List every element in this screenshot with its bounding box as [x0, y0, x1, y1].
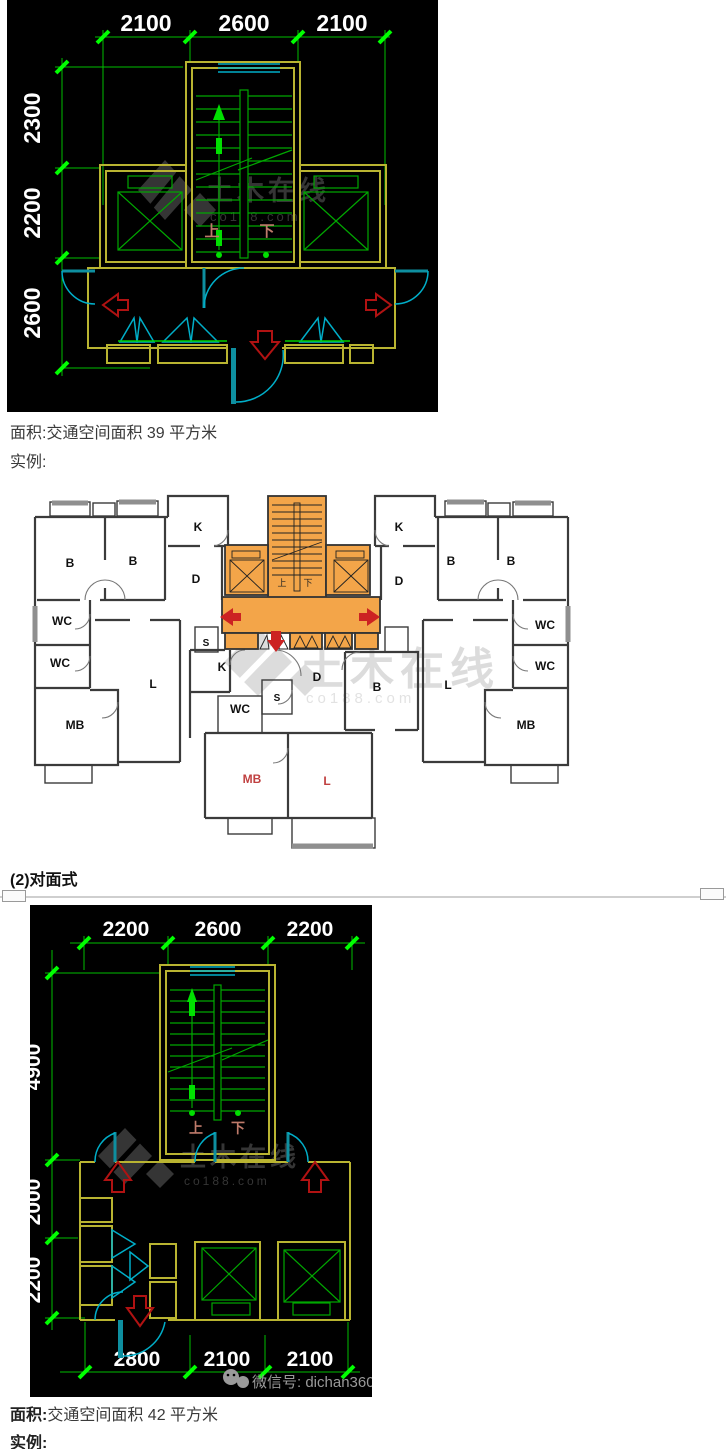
stair-down-label: 下: [303, 578, 312, 588]
room-label: MB: [66, 718, 85, 732]
dim-left-2: 2200: [19, 187, 45, 238]
dim-left-3: 2200: [30, 1257, 45, 1304]
dim-top-1: 2200: [103, 918, 150, 941]
room-label: WC: [52, 614, 72, 628]
dim-top-3: 2200: [287, 918, 334, 941]
room-label: K: [395, 520, 404, 534]
dim-bottom-3: 2100: [287, 1348, 334, 1371]
watermark-sub: co188.com: [306, 690, 415, 707]
dim-top-2: 2600: [218, 10, 269, 36]
area-label: 面积:: [10, 425, 46, 442]
room-label: B: [66, 556, 75, 570]
room-label: K: [194, 520, 203, 534]
dim-left-1: 2300: [19, 92, 45, 143]
watermark-title: 土木在线: [180, 1142, 300, 1172]
watermark-sub: co188.com: [210, 209, 301, 224]
dim-top-3: 2100: [316, 10, 367, 36]
dim-top-2: 2600: [195, 918, 242, 941]
room-label: WC: [230, 702, 250, 716]
unit-left-walls: [35, 496, 228, 783]
room-label: K: [218, 660, 227, 674]
figure3-example-label: 实例:: [10, 1429, 47, 1449]
stair-up-label: 上: [189, 1120, 203, 1136]
dim-left-2: 2000: [30, 1179, 45, 1226]
room-label: B: [447, 554, 456, 568]
article-page: 土木在线 co188.com 2100 2600 2100: [0, 0, 726, 1449]
dim-bottom-2: 2100: [204, 1348, 251, 1371]
room-label-red: L: [323, 774, 330, 788]
stair-down-label: 下: [259, 223, 274, 240]
divider-handle-right: [700, 888, 724, 900]
room-label: L: [444, 678, 451, 692]
figure3-caption: 面积:交通空间面积 42 平方米: [10, 1401, 218, 1425]
section-heading: (2)对面式: [10, 866, 78, 890]
area-value: 交通空间面积 42 平方米: [47, 1407, 218, 1424]
core-highlight: 上 下: [220, 496, 380, 652]
room-label: MB: [517, 718, 536, 732]
watermark-sub: co188.com: [184, 1174, 270, 1188]
area-label: 面积:: [10, 1407, 47, 1424]
watermark-title: 土木在线: [206, 176, 330, 206]
room-label: D: [395, 574, 404, 588]
room-label: L: [149, 677, 156, 691]
room-label: WC: [50, 656, 70, 670]
room-label: B: [129, 554, 138, 568]
room-label: S: [274, 693, 281, 704]
dim-top-1: 2100: [120, 10, 171, 36]
room-label-red: MB: [243, 772, 262, 786]
room-label: B: [373, 680, 382, 694]
room-label: WC: [535, 659, 555, 673]
stair-up-label: 上: [204, 223, 219, 240]
room-label: D: [313, 670, 322, 684]
cad-drawing-2: 土木在线 co188.com: [30, 905, 372, 1397]
cad-drawing-1: 土木在线 co188.com 2100 2600 2100: [7, 0, 438, 412]
room-label: S: [203, 638, 210, 649]
floor-plan: 土木在线 co188.com: [25, 483, 575, 855]
wechat-id-text: 微信号: dichan360: [252, 1374, 372, 1391]
stair-down-label: 下: [231, 1120, 245, 1136]
area-value: 交通空间面积 39 平方米: [46, 425, 217, 442]
room-label: WC: [535, 618, 555, 632]
section-divider: [0, 896, 726, 898]
divider-handle-left: [2, 890, 26, 902]
unit-right-walls: [375, 496, 568, 783]
dim-left-3: 2600: [19, 287, 45, 338]
room-label: D: [192, 572, 201, 586]
figure1-caption: 面积:交通空间面积 39 平方米: [10, 419, 217, 443]
room-label: B: [507, 554, 516, 568]
figure1-example-label: 实例:: [10, 448, 46, 472]
stair-up-label: 上: [277, 578, 286, 588]
dim-left-1: 4900: [30, 1044, 45, 1091]
